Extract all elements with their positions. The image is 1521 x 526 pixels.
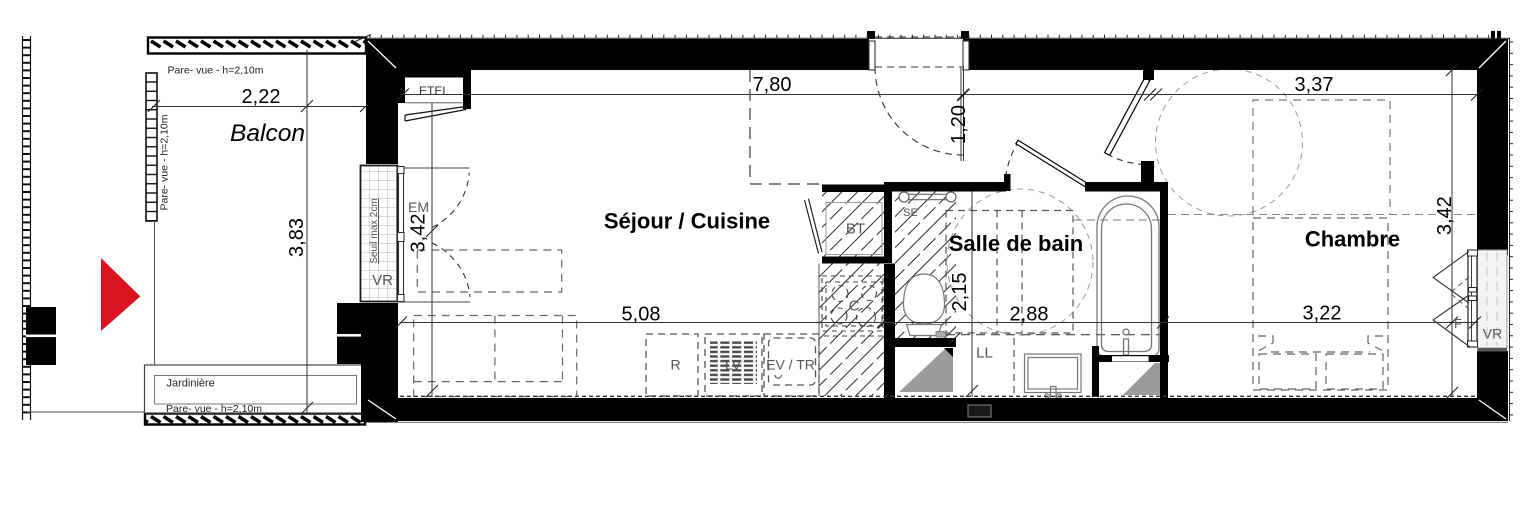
svg-text:LL: LL [976,345,993,362]
svg-text:Balcon: Balcon [230,120,305,147]
svg-text:3,83: 3,83 [286,218,308,257]
svg-text:2,15: 2,15 [949,273,971,312]
svg-text:F: F [1454,317,1462,331]
svg-text:Jardinière: Jardinière [167,378,215,390]
svg-text:2,22: 2,22 [242,86,281,108]
svg-text:2,88: 2,88 [1010,304,1049,326]
svg-text:EV / TR: EV / TR [766,357,815,373]
svg-text:3,22: 3,22 [1303,303,1342,325]
svg-text:3,37: 3,37 [1295,74,1334,96]
svg-text:C: C [849,298,860,315]
svg-text:3,42: 3,42 [408,214,430,253]
svg-text:1,20: 1,20 [948,105,970,144]
svg-text:Chambre: Chambre [1305,227,1400,252]
svg-text:Séjour / Cuisine: Séjour / Cuisine [604,209,770,234]
svg-text:BT: BT [846,221,865,238]
svg-text:3,42: 3,42 [1434,196,1456,235]
svg-text:SE: SE [903,207,918,219]
svg-text:Pare- vue - h=2,10m: Pare- vue - h=2,10m [166,403,262,415]
svg-text:R: R [670,357,680,373]
svg-text:EM: EM [408,199,429,215]
svg-text:LV: LV [725,357,742,373]
svg-text:VR: VR [1483,326,1502,342]
svg-text:Seuil max 2cm: Seuil max 2cm [369,198,380,264]
svg-text:VR: VR [372,272,393,289]
svg-text:Pare- vue - h=2,10m: Pare- vue - h=2,10m [168,65,264,77]
svg-text:Salle de bain: Salle de bain [949,231,1084,256]
svg-text:Pare- vue - h=2,10m: Pare- vue - h=2,10m [159,114,171,210]
svg-text:7,80: 7,80 [753,74,792,96]
svg-text:ETEL: ETEL [419,84,449,98]
svg-text:5,08: 5,08 [622,304,661,326]
